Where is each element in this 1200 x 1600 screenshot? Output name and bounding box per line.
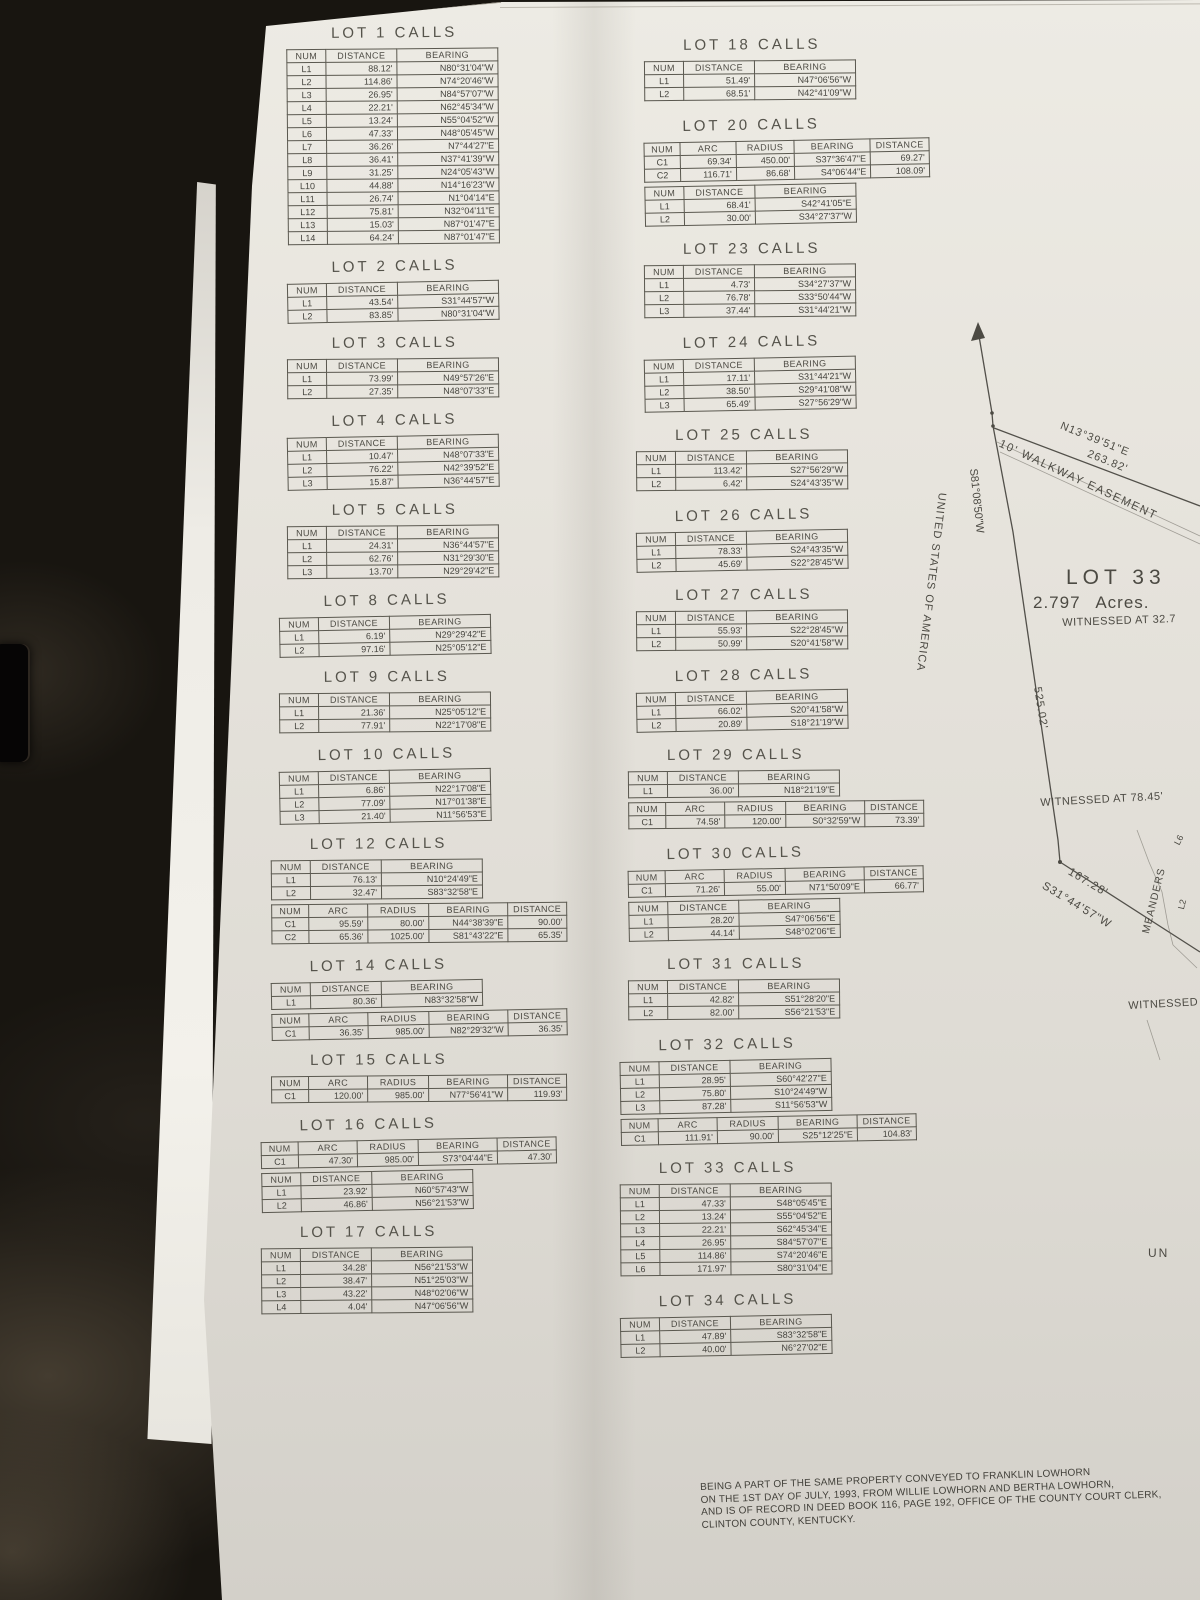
curve-calls-table: NUMARCRADIUSBEARINGDISTANCEC136.35'985.0… xyxy=(271,1008,567,1041)
cell: 13.70' xyxy=(327,565,398,579)
header-cell: BEARING xyxy=(738,770,839,784)
header-cell: BEARING xyxy=(746,450,847,464)
cell: 42.82' xyxy=(668,993,739,1007)
header-cell: DISTANCE xyxy=(326,526,397,540)
header-cell: DISTANCE xyxy=(675,451,746,465)
cell: L13 xyxy=(288,218,327,231)
header-cell: ARC xyxy=(665,870,724,884)
header-cell: NUM xyxy=(645,186,684,200)
lot-block: LOT 26 CALLSNUMDISTANCEBEARINGL178.33'S2… xyxy=(635,503,930,573)
cell: L5 xyxy=(621,1250,660,1263)
header-cell: DISTANCE xyxy=(318,693,389,707)
lot-title: LOT 25 CALLS xyxy=(636,425,852,444)
cell: 36.35' xyxy=(508,1022,567,1036)
cell: S84°57'07"E xyxy=(731,1235,832,1249)
header-cell: DISTANCE xyxy=(300,1248,371,1262)
cell: N48°05'45"W xyxy=(397,126,498,140)
line-calls-table: NUMDISTANCEBEARINGL136.00'N18°21'19"E xyxy=(628,769,840,798)
header-cell: NUM xyxy=(272,1014,309,1028)
line-calls-table: NUMDISTANCEBEARINGL16.86'N22°17'08"EL277… xyxy=(279,768,492,825)
line-calls-table: NUMDISTANCEBEARINGL128.20'S47°06'56"EL24… xyxy=(628,898,841,942)
cell: 120.00' xyxy=(725,814,786,828)
header-cell: NUM xyxy=(272,905,309,918)
header-cell: BEARING xyxy=(381,859,482,873)
cell: 985.00' xyxy=(368,1024,429,1038)
cell: L1 xyxy=(287,62,326,75)
lot-block: LOT 25 CALLSNUMDISTANCEBEARINGL1113.42'S… xyxy=(636,425,931,492)
lot-block: LOT 16 CALLSNUMARCRADIUSBEARINGDISTANCEC… xyxy=(260,1112,582,1213)
cell: N80°31'04"W xyxy=(398,306,499,321)
table-row: L313.70'N29°29'42"E xyxy=(288,564,499,579)
cell: S56°21'53"E xyxy=(739,1005,840,1019)
lot-title: LOT 30 CALLS xyxy=(627,843,843,864)
cell: 450.00' xyxy=(736,153,795,167)
cell: L1 xyxy=(280,706,319,719)
header-cell: NUM xyxy=(644,61,683,74)
cell: L4 xyxy=(262,1301,301,1314)
header-cell: ARC xyxy=(680,141,736,155)
header-cell: NUM xyxy=(261,1249,300,1262)
header-cell: DISTANCE xyxy=(667,980,738,994)
cell: 108.09' xyxy=(871,164,930,178)
cell: L4 xyxy=(287,101,326,114)
cell: L3 xyxy=(288,477,327,491)
header-cell: NUM xyxy=(261,1142,298,1156)
cell: N74°20'46"W xyxy=(397,74,498,88)
header-cell: NUM xyxy=(629,802,666,815)
cell: L1 xyxy=(629,915,668,929)
cell: L5 xyxy=(287,114,326,127)
cell: 30.00' xyxy=(684,211,755,225)
lot-block: LOT 23 CALLSNUMDISTANCEBEARINGL14.73'S34… xyxy=(644,239,931,318)
table-row: L220.89'S18°21'19"W xyxy=(637,715,848,732)
header-cell: NUM xyxy=(287,438,326,452)
cell: L1 xyxy=(261,1262,300,1275)
cell: N25°05'12"E xyxy=(390,640,491,655)
cell: S48°02'06"E xyxy=(739,924,840,939)
cell: 26.74' xyxy=(327,192,398,206)
line-calls-table: NUMDISTANCEBEARINGL110.47'N48°07'33"EL27… xyxy=(287,434,500,491)
cell: L2 xyxy=(629,1006,668,1019)
header-cell: BEARING xyxy=(397,358,498,372)
cell: 36.35' xyxy=(309,1026,368,1040)
cell: L9 xyxy=(288,166,327,179)
photo-of-survey-plat: { "headers": { "line": ["NUM", "DISTANCE… xyxy=(0,0,1200,1600)
header-cell: NUM xyxy=(279,693,318,706)
lot-calls-column-right: LOT 18 CALLSNUMDISTANCEBEARINGL151.49'N4… xyxy=(612,32,930,1371)
cell: L1 xyxy=(645,199,684,213)
cell: 76.78' xyxy=(684,291,755,305)
lot-block: LOT 24 CALLSNUMDISTANCEBEARINGL117.11'S3… xyxy=(643,330,930,412)
lot-title: LOT 12 CALLS xyxy=(271,834,487,853)
cell: N56°21'53"W xyxy=(371,1260,472,1274)
lot-block: LOT 18 CALLSNUMDISTANCEBEARINGL151.49'N4… xyxy=(644,35,931,101)
lot-block: LOT 9 CALLSNUMDISTANCEBEARINGL121.36'N25… xyxy=(279,667,582,734)
cell: N55°04'52"W xyxy=(397,113,498,127)
line-calls-table: NUMDISTANCEBEARINGL142.82'S51°28'20"EL28… xyxy=(628,978,840,1020)
cell: N37°41'39"W xyxy=(398,152,499,166)
table-row: L227.35'N48°07'33"E xyxy=(288,384,499,399)
header-cell: DISTANCE xyxy=(870,138,929,152)
cell: 75.81' xyxy=(327,205,398,219)
line-calls-table: NUMDISTANCEBEARINGL166.02'S20°41'58"WL22… xyxy=(636,689,849,733)
cell: 90.00' xyxy=(717,1129,778,1143)
header-cell: RADIUS xyxy=(717,1116,778,1130)
line-calls-table: NUMDISTANCEBEARINGL178.33'S24°43'35"WL24… xyxy=(636,529,849,573)
cell: 171.97' xyxy=(660,1262,731,1276)
table-row: L282.00'S56°21'53"E xyxy=(629,1005,840,1020)
cell: C1 xyxy=(629,815,666,828)
cell: L6 xyxy=(287,127,326,140)
lot-block: LOT 27 CALLSNUMDISTANCEBEARINGL155.93'S2… xyxy=(636,585,931,652)
cell: 55.93' xyxy=(676,624,747,638)
cell: L2 xyxy=(637,477,676,490)
cell: L12 xyxy=(288,205,327,218)
cell: 40.00' xyxy=(660,1342,731,1356)
line-calls-table: NUMDISTANCEBEARINGL168.41'S42°41'05"EL23… xyxy=(644,183,857,227)
cell: N10°24'49"E xyxy=(381,872,482,886)
lot-title: LOT 10 CALLS xyxy=(278,744,494,765)
table-row: L180.36'N83°32'58"W xyxy=(271,992,482,1009)
table-row: L244.14'S48°02'06"E xyxy=(629,924,840,941)
table-row: C1120.00'985.00'N77°56'41"W119.93' xyxy=(272,1087,567,1103)
lot-title: LOT 33 CALLS xyxy=(619,1158,835,1177)
line-calls-table: NUMDISTANCEBEARINGL151.49'N47°06'56"WL26… xyxy=(644,59,856,101)
lot-block: LOT 31 CALLSNUMDISTANCEBEARINGL142.82'S5… xyxy=(628,954,931,1021)
cell: 80.00' xyxy=(368,916,429,930)
cell: 38.47' xyxy=(301,1274,372,1288)
cell: L2 xyxy=(288,552,327,565)
header-cell: BEARING xyxy=(428,1075,507,1089)
cell: N87°01'47"E xyxy=(398,217,499,231)
header-cell: ARC xyxy=(308,1076,367,1090)
lot-block: LOT 30 CALLSNUMARCRADIUSBEARINGDISTANCEC… xyxy=(627,841,931,942)
lot-title: LOT 16 CALLS xyxy=(260,1114,476,1135)
header-cell: BEARING xyxy=(754,264,855,278)
cell: 36.26' xyxy=(327,140,398,154)
header-cell: NUM xyxy=(636,451,675,464)
cell: N49°57'26"E xyxy=(398,371,499,385)
cell: N29°29'42"E xyxy=(398,564,499,578)
header-cell: DISTANCE xyxy=(497,1137,556,1151)
lot-block: LOT 28 CALLSNUMDISTANCEBEARINGL166.02'S2… xyxy=(635,663,930,733)
cell: N83°32'58"W xyxy=(381,992,482,1007)
header-cell: DISTANCE xyxy=(508,1009,567,1023)
cell: S83°32'58"E xyxy=(381,885,482,899)
cell: L8 xyxy=(288,153,327,166)
cell: S18°21'19"W xyxy=(747,715,848,730)
cell: S51°28'20"E xyxy=(739,992,840,1006)
cell: S24°43'35"W xyxy=(747,476,848,490)
cell: 104.83' xyxy=(857,1127,916,1141)
table-row: L240.00'N6°27'02"E xyxy=(621,1340,832,1357)
cell: 36.00' xyxy=(667,784,738,798)
cell: 34.28' xyxy=(300,1261,371,1275)
cell: L3 xyxy=(288,565,327,578)
curve-calls-table: NUMARCRADIUSBEARINGDISTANCEC169.34'450.0… xyxy=(643,137,930,182)
cell: N14°16'23"W xyxy=(398,178,499,192)
cell: L1 xyxy=(288,372,327,385)
table-row: L246.86'N56°21'53"W xyxy=(262,1196,473,1213)
line-calls-table: NUMDISTANCEBEARINGL16.19'N29°29'42"EL297… xyxy=(279,614,492,658)
north-arrow-icon xyxy=(971,322,985,341)
cell: 65.49' xyxy=(684,397,755,411)
table-row: L136.00'N18°21'19"E xyxy=(628,783,839,798)
cell: 45.69' xyxy=(676,557,747,571)
cell: N87°01'47"E xyxy=(398,230,499,244)
header-cell: DISTANCE xyxy=(507,1074,566,1088)
cell: N56°21'53"W xyxy=(372,1196,473,1211)
cell: L4 xyxy=(621,1237,660,1250)
cell: C1 xyxy=(628,884,665,898)
cell: C2 xyxy=(272,931,309,944)
header-cell: ARC xyxy=(658,1118,717,1132)
cell: N31°29'30"E xyxy=(398,551,499,565)
cell: 50.99' xyxy=(676,637,747,651)
cell: L10 xyxy=(288,179,327,192)
cell: 55.00' xyxy=(724,881,785,895)
header-cell: NUM xyxy=(628,771,667,784)
lot-block: LOT 3 CALLSNUMDISTANCEBEARINGL173.99'N49… xyxy=(287,333,582,400)
table-row: L232.47'S83°32'58"E xyxy=(271,885,482,900)
cell: L1 xyxy=(637,706,676,720)
cell: 119.93' xyxy=(508,1087,567,1101)
line-calls-table: NUMDISTANCEBEARINGL143.54'S31°44'57"WL28… xyxy=(287,280,500,324)
sheet-edge-line xyxy=(500,3,1200,8)
cell: L1 xyxy=(288,297,327,311)
header-cell: NUM xyxy=(636,611,675,624)
table-row: L283.85'N80°31'04"W xyxy=(288,306,499,323)
header-cell: ARC xyxy=(309,904,368,918)
cell: S20°41'58"W xyxy=(747,636,848,650)
cell: L1 xyxy=(288,451,327,465)
cell: 27.35' xyxy=(327,385,398,399)
cell: 95.59' xyxy=(309,917,368,931)
lot-title: LOT 32 CALLS xyxy=(619,1034,835,1055)
cell: 68.51' xyxy=(684,87,755,101)
line-calls-table: NUMDISTANCEBEARINGL155.93'S22°28'45"WL25… xyxy=(636,609,848,651)
line-calls-table: NUMDISTANCEBEARINGL117.11'S31°44'21"WL23… xyxy=(644,356,857,413)
header-cell: NUM xyxy=(644,143,680,157)
cell: 71.26' xyxy=(665,883,724,897)
plat-boundary-lines xyxy=(900,300,1200,1100)
lot-title: LOT 17 CALLS xyxy=(261,1223,477,1242)
header-cell: RADIUS xyxy=(736,140,795,154)
lot-title: LOT 34 CALLS xyxy=(619,1290,835,1311)
cell: L7 xyxy=(288,140,327,153)
header-cell: NUM xyxy=(636,533,675,547)
cell: 47.30' xyxy=(298,1154,357,1168)
header-cell: NUM xyxy=(279,772,318,786)
cell: 15.03' xyxy=(327,218,398,232)
lot-block: LOT 5 CALLSNUMDISTANCEBEARINGL124.31'N36… xyxy=(287,500,582,580)
header-cell: NUM xyxy=(628,980,667,993)
cell: L2 xyxy=(645,385,684,399)
table-row: L387.28'S11°56'53"W xyxy=(621,1097,832,1114)
cell: N32°04'11"E xyxy=(398,204,499,218)
cell: 83.85' xyxy=(327,308,398,322)
cell: 69.27' xyxy=(870,151,929,165)
cell: 87.28' xyxy=(660,1099,731,1113)
lot-block: LOT 8 CALLSNUMDISTANCEBEARINGL16.19'N29°… xyxy=(278,588,581,658)
cell: C1 xyxy=(644,156,680,170)
header-cell: BEARING xyxy=(389,692,490,706)
lot-title: LOT 27 CALLS xyxy=(636,585,852,604)
cell: L2 xyxy=(645,291,684,304)
table-row: L297.16'N25°05'12"E xyxy=(280,640,491,657)
cell: N48°07'33"E xyxy=(398,384,499,398)
cell: L14 xyxy=(288,231,327,244)
cell: 114.86' xyxy=(326,75,397,89)
table-row: L44.04'N47°06'56"W xyxy=(262,1299,473,1314)
cell: S81°43'22"E xyxy=(429,929,508,943)
cell: C1 xyxy=(272,1090,309,1103)
cell: L3 xyxy=(262,1288,301,1301)
cell: L1 xyxy=(645,372,684,386)
cell: 13.24' xyxy=(326,114,397,128)
header-cell: BEARING xyxy=(738,979,839,993)
cell: N36°44'57"E xyxy=(398,473,499,488)
cell: N11°56'53"E xyxy=(390,807,491,822)
cell: N1°04'14"E xyxy=(398,191,499,205)
cell: N24°05'43"W xyxy=(398,165,499,179)
curve-calls-table: NUMARCRADIUSBEARINGDISTANCEC171.26'55.00… xyxy=(628,865,924,898)
header-cell: DISTANCE xyxy=(659,1184,730,1198)
line-calls-table: NUMDISTANCEBEARINGL134.28'N56°21'53"WL23… xyxy=(261,1247,474,1315)
cell: L6 xyxy=(621,1263,660,1276)
cell: L2 xyxy=(645,87,684,100)
cell: 86.68' xyxy=(736,166,795,180)
line-calls-table: NUMDISTANCEBEARINGL188.12'N80°31'04"WL21… xyxy=(286,47,500,245)
cell: L2 xyxy=(287,75,326,88)
cell: S48°05'45"E xyxy=(730,1196,831,1210)
cell: 37.44' xyxy=(684,304,755,318)
cell: 44.14' xyxy=(668,926,739,940)
cell: L2 xyxy=(262,1199,301,1213)
cell: L2 xyxy=(629,928,668,942)
cell: L2 xyxy=(271,887,310,900)
cell: S0°32'59"W xyxy=(786,814,865,828)
table-row: L365.49'S27°56'29"W xyxy=(645,395,856,412)
cell: L1 xyxy=(280,785,319,799)
header-cell: RADIUS xyxy=(368,1011,429,1025)
lot-title: LOT 15 CALLS xyxy=(271,1050,487,1069)
header-cell: BEARING xyxy=(397,48,498,62)
header-cell: BEARING xyxy=(746,610,847,624)
lot-title: LOT 3 CALLS xyxy=(287,333,503,352)
lot-title: LOT 14 CALLS xyxy=(270,955,486,976)
header-cell: NUM xyxy=(271,861,310,874)
cell: L2 xyxy=(620,1211,659,1224)
cell: L1 xyxy=(644,278,683,291)
lot-block: LOT 12 CALLSNUMDISTANCEBEARINGL176.13'N1… xyxy=(271,834,582,945)
cell: N51°25'03"W xyxy=(372,1273,473,1287)
header-cell: DISTANCE xyxy=(857,1114,916,1128)
header-cell: NUM xyxy=(271,1077,308,1090)
table-row: L268.51'N42°41'09"W xyxy=(645,86,856,101)
cell: L1 xyxy=(637,546,676,560)
cell: N77°56'41"W xyxy=(429,1088,508,1102)
table-row: L277.91'N22°17'08"E xyxy=(280,718,491,733)
header-cell: NUM xyxy=(279,618,318,632)
cell: 65.36' xyxy=(309,930,368,944)
cell: L1 xyxy=(637,624,676,637)
header-cell: BEARING xyxy=(397,525,498,539)
cell: N71°50'09"E xyxy=(785,880,864,895)
cell: L2 xyxy=(288,385,327,398)
lot-title: LOT 18 CALLS xyxy=(644,35,860,54)
cell: N62°45'34"W xyxy=(397,100,498,114)
table-row: C265.36'1025.00'S81°43'22"E65.35' xyxy=(272,928,567,944)
lot-block: LOT 33 CALLSNUMDISTANCEBEARINGL147.33'S4… xyxy=(619,1158,930,1277)
cell: 73.99' xyxy=(327,372,398,386)
header-cell: RADIUS xyxy=(367,1075,428,1089)
cell: N47°06'56"W xyxy=(372,1299,473,1313)
table-row: L321.40'N11°56'53"E xyxy=(280,807,491,824)
cell: L1 xyxy=(621,1331,660,1345)
lot-block: LOT 17 CALLSNUMDISTANCEBEARINGL134.28'N5… xyxy=(261,1222,582,1315)
header-cell: NUM xyxy=(644,359,683,373)
table-row: C174.58'120.00'S0°32'59"W73.39' xyxy=(629,813,924,829)
cell: 74.58' xyxy=(666,815,725,829)
lot-block: LOT 29 CALLSNUMDISTANCEBEARINGL136.00'N1… xyxy=(628,745,931,830)
cell: N42°41'09"W xyxy=(755,86,856,100)
cell: L2 xyxy=(621,1344,660,1358)
lot-block: LOT 4 CALLSNUMDISTANCEBEARINGL110.47'N48… xyxy=(286,408,581,491)
lot-block: LOT 32 CALLSNUMDISTANCEBEARINGL128.95'S6… xyxy=(619,1032,931,1146)
cell: C2 xyxy=(644,169,680,183)
cell: L2 xyxy=(280,719,319,732)
header-cell: ARC xyxy=(666,802,725,816)
cell: S27°56'29"W xyxy=(747,463,848,477)
cell: 47.30' xyxy=(497,1150,556,1164)
line-calls-table: NUMDISTANCEBEARINGL128.95'S60°42'27"EL27… xyxy=(619,1058,832,1115)
lot-block: LOT 1 CALLSNUMDISTANCEBEARINGL188.12'N80… xyxy=(286,23,582,246)
cell: 97.16' xyxy=(319,642,390,656)
header-cell: BEARING xyxy=(371,1247,472,1261)
cell: S4°06'44"E xyxy=(795,165,871,179)
cell: 13.24' xyxy=(659,1210,730,1224)
header-cell: DISTANCE xyxy=(683,61,754,75)
acreage-label: 2.797 Acres. xyxy=(1033,593,1150,613)
cell: L1 xyxy=(280,631,319,645)
cell: 120.00' xyxy=(309,1089,368,1103)
table-row: L26.42'S24°43'35"W xyxy=(637,476,848,491)
line-calls-table: NUMDISTANCEBEARINGL180.36'N83°32'58"W xyxy=(271,979,483,1010)
deed-reference-note: BEING A PART OF THE SAME PROPERTY CONVEY… xyxy=(700,1463,1200,1532)
header-cell: NUM xyxy=(287,359,326,372)
cell: 62.76' xyxy=(327,552,398,566)
cell: 21.40' xyxy=(319,809,390,823)
header-cell: DISTANCE xyxy=(683,265,754,279)
cell: N80°31'04"W xyxy=(397,61,498,75)
cell: L1 xyxy=(271,996,310,1010)
header-cell: DISTANCE xyxy=(667,771,738,785)
cell: S62°45'34"E xyxy=(731,1222,832,1236)
header-cell: NUM xyxy=(620,1062,659,1076)
cell: 64.24' xyxy=(327,231,398,245)
header-cell: DISTANCE xyxy=(675,611,746,625)
lot-block: LOT 15 CALLSNUMARCRADIUSBEARINGDISTANCEC… xyxy=(271,1050,581,1104)
table-row: L1464.24'N87°01'47"E xyxy=(288,230,499,245)
cell: 76.13' xyxy=(310,873,381,887)
curve-calls-table: NUMARCRADIUSBEARINGDISTANCEC195.59'80.00… xyxy=(271,902,567,945)
cell: S11°56'53"W xyxy=(731,1097,832,1112)
cell: S80°31'04"E xyxy=(731,1261,832,1275)
lot-block: LOT 14 CALLSNUMDISTANCEBEARINGL180.36'N8… xyxy=(270,953,582,1041)
cell: 90.00' xyxy=(508,915,567,929)
cell: L2 xyxy=(645,212,684,226)
